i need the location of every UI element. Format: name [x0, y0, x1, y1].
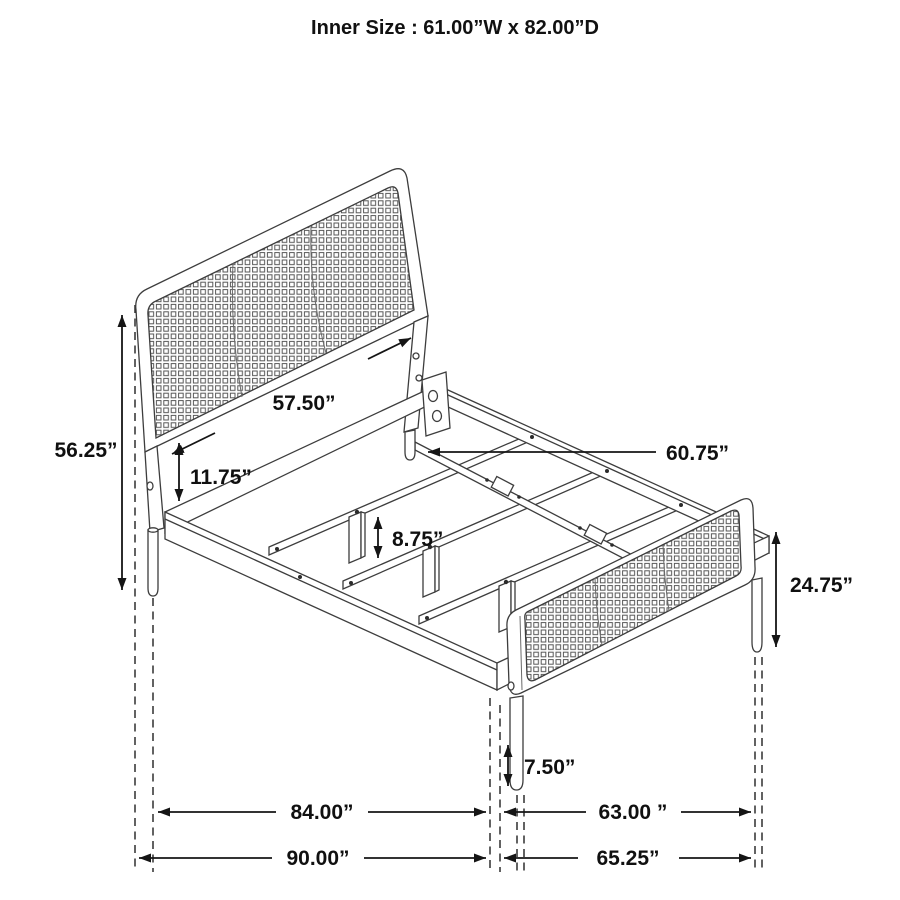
dimension-label-rail-gap: 11.75” — [190, 466, 252, 489]
dimension-label-footboard-width: 63.00 ” — [599, 801, 668, 824]
bracket-hole — [429, 391, 438, 402]
dimension-label-slat-leg: 8.75” — [392, 528, 443, 551]
slat-leg — [349, 512, 361, 563]
dimension-label-footboard-leg: 7.50” — [524, 756, 575, 779]
footboard-right-leg — [752, 578, 762, 652]
bolt — [508, 682, 514, 690]
center-rail-joint — [491, 477, 513, 496]
footboard-left-leg — [510, 696, 523, 790]
dimension-label-headboard-height: 56.25” — [54, 439, 117, 462]
headboard-right-leg — [405, 430, 415, 460]
dimension-label-center-rail: 60.75” — [666, 442, 729, 465]
dimension-label-frame-length: 84.00” — [290, 801, 353, 824]
footboard — [507, 499, 762, 790]
bed-dimension-diagram-page: Inner Size : 61.00”W x 82.00”D — [0, 0, 900, 900]
diagram-title: Inner Size : 61.00”W x 82.00”D — [311, 17, 599, 39]
bed-dimension-diagram: Inner Size : 61.00”W x 82.00”D — [0, 0, 900, 900]
dimension-label-overall-length: 90.00” — [286, 847, 349, 870]
bolt — [147, 482, 153, 490]
dimension-label-footboard-height: 24.75” — [790, 574, 853, 597]
dimension-label-footboard-overall: 65.25” — [596, 847, 659, 870]
slat-leg — [423, 546, 435, 597]
bolt-hole — [413, 353, 419, 359]
headboard-left-leg — [148, 530, 158, 596]
slat — [343, 468, 603, 589]
bolt-hole — [416, 375, 422, 381]
center-rail-joint — [584, 525, 606, 544]
dimension-label-headboard-width: 57.50” — [272, 392, 335, 415]
bracket-hole — [433, 411, 442, 422]
